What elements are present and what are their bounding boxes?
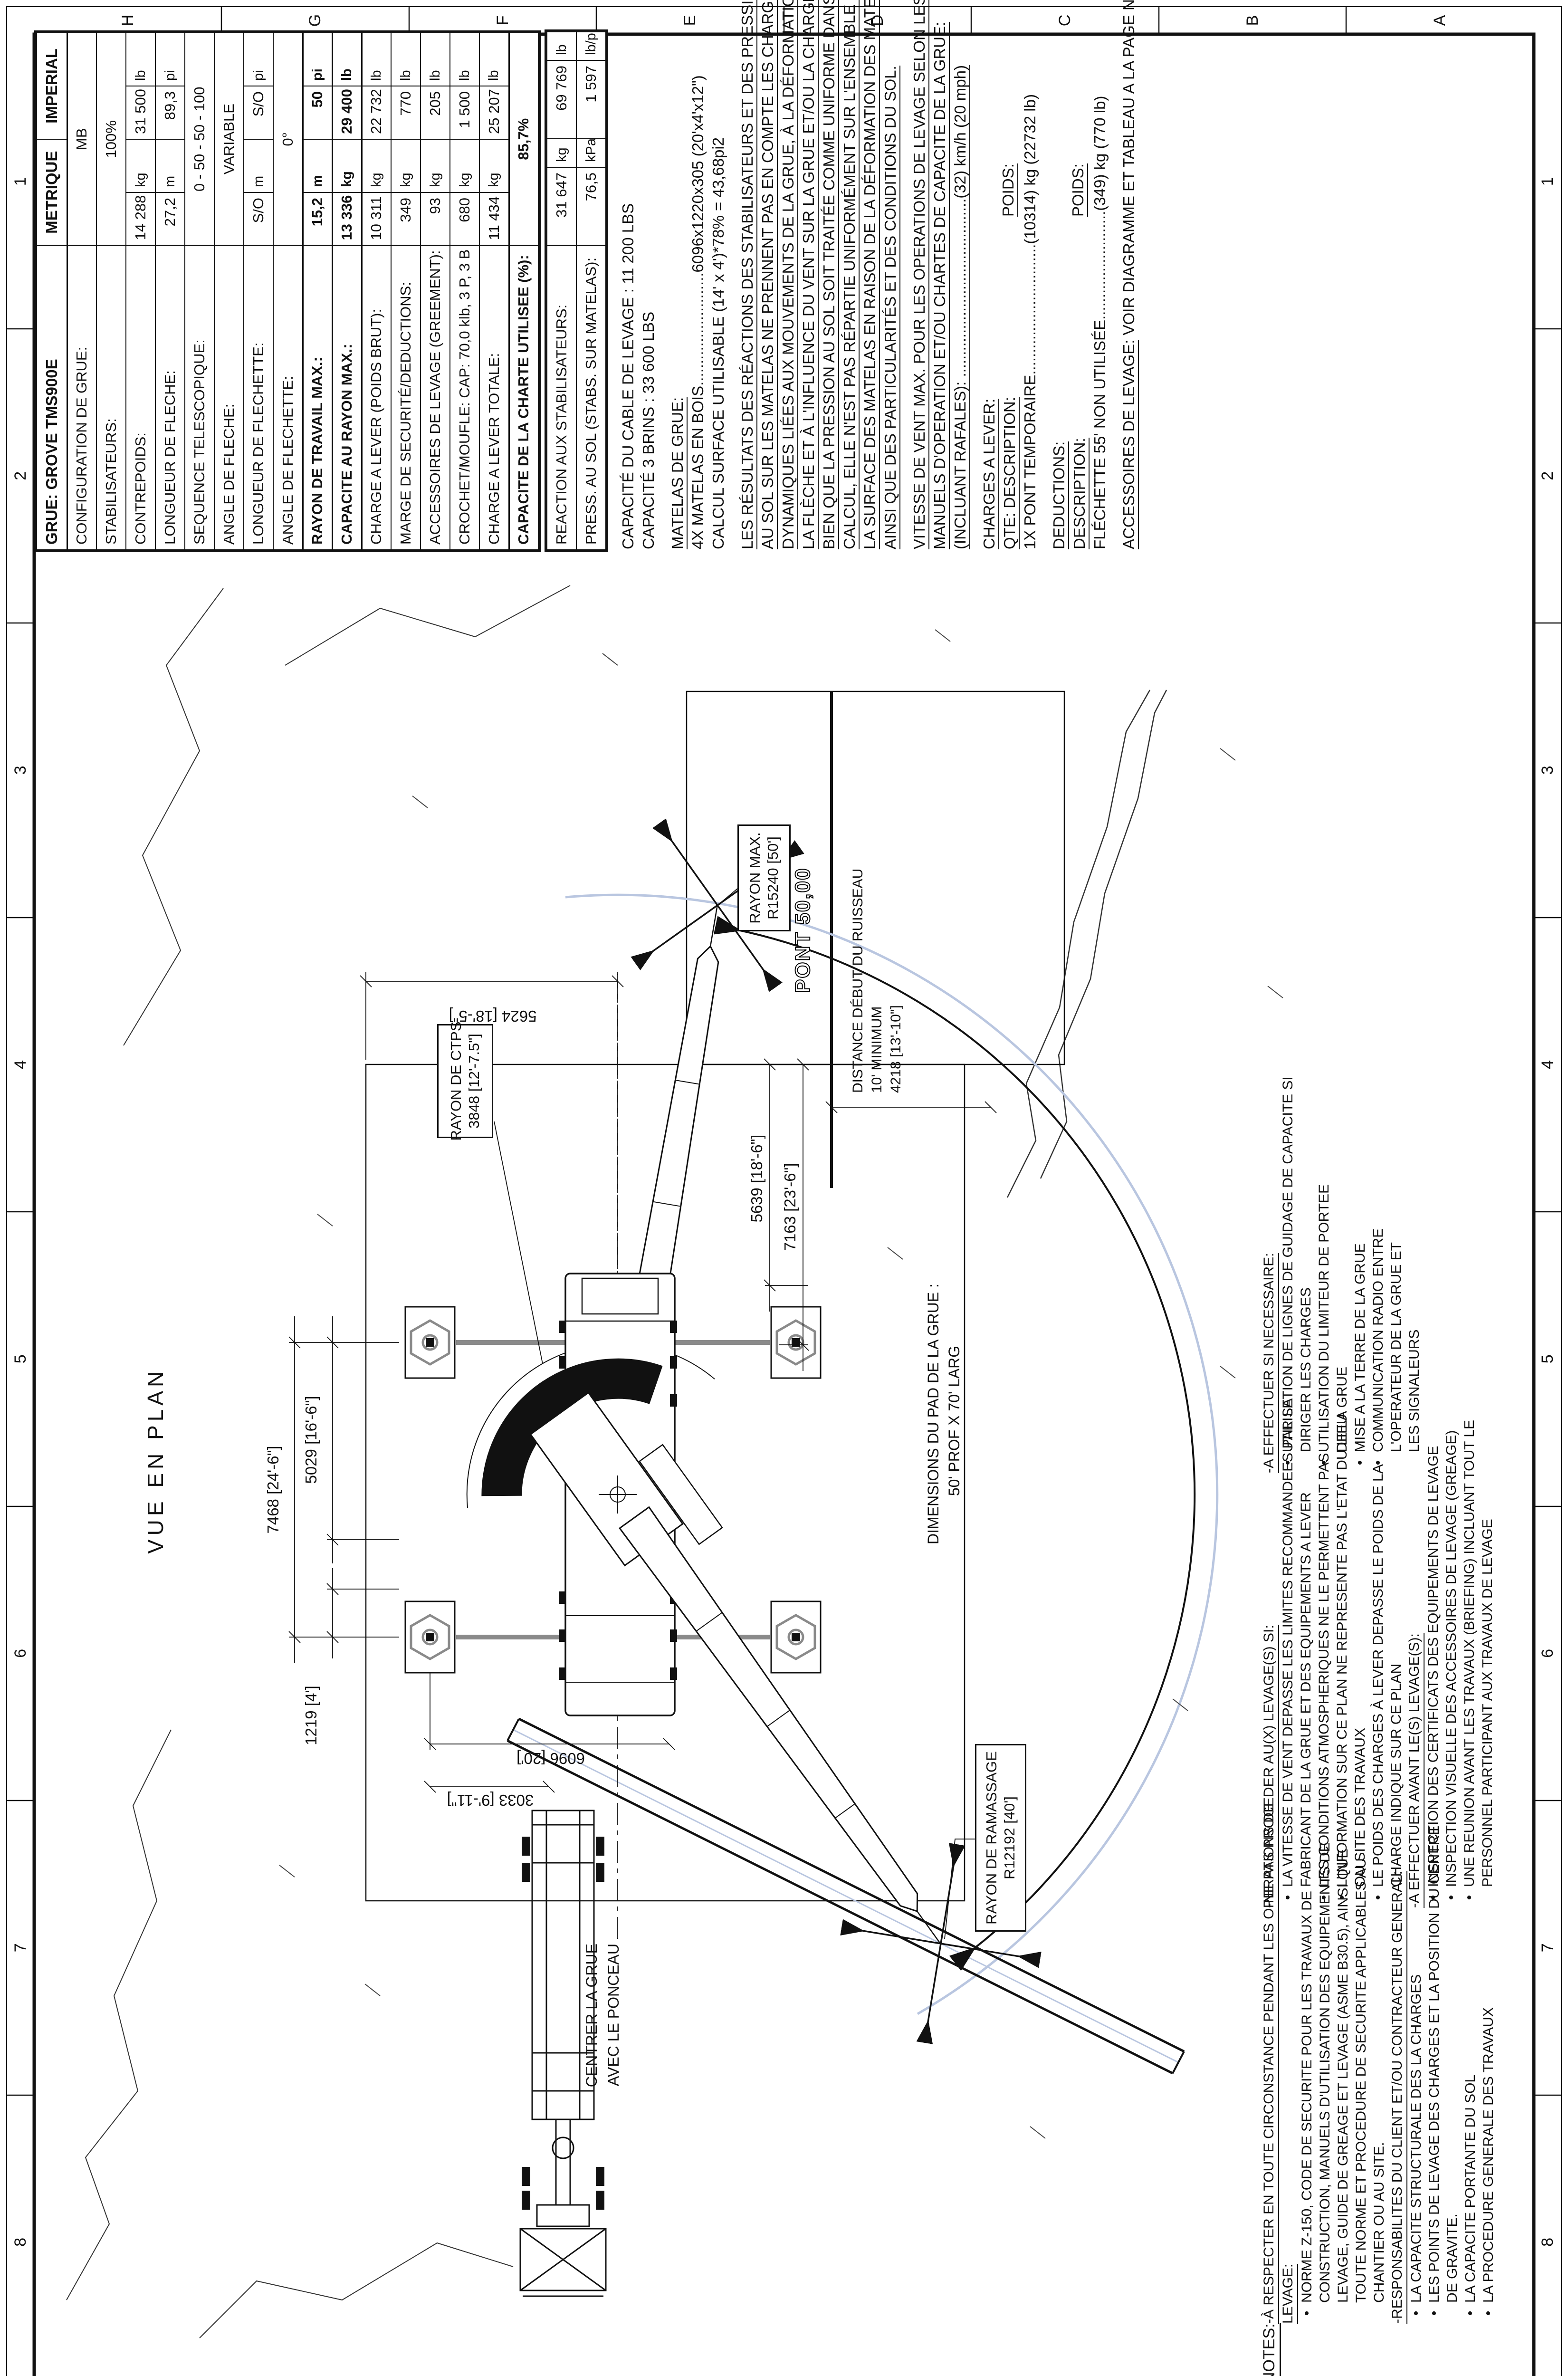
view-title: VUE EN PLAN [143, 1368, 168, 1554]
grid-label: 7 [7, 1801, 34, 2095]
grid-label: 6 [1534, 1506, 1561, 1801]
drawing-sheet: 87654321 87654321 HGFEDCBA HGFEDCBA GRUE… [0, 0, 1568, 2376]
pont-label: PONT 50,00 [791, 867, 815, 993]
grid-label: 8 [1534, 2095, 1561, 2376]
note-line: •UNE REUNION AVANT LES TRAVAUX (BRIEFING… [1461, 1490, 1479, 1908]
paragraph-line: LES RÉSULTATS DES RÉACTIONS DES STABILIS… [738, 0, 757, 549]
note-line: DE LA GRUE [1333, 1093, 1351, 1473]
grid-label: 3 [7, 623, 34, 918]
table-row: CROCHET/MOUFLE: CAP: 70,0 klb, 3 P, 3 B … [450, 33, 479, 550]
note-line: CHANTIER OU AU SITE. [1370, 1925, 1388, 2324]
grid-label: B [1159, 7, 1347, 34]
table-row: RAYON DE TRAVAIL MAX.: 15,2m 50pi [303, 33, 332, 550]
note-line: DIRIGER LES CHARGES [1297, 1093, 1315, 1473]
deduction-item: FLÉCHETTE 55' NON UTILISÉE..............… [1090, 34, 1110, 549]
table-row: CONFIGURATION DE GRUE: MB [67, 33, 96, 550]
charges-heading: CHARGES A LEVER: [980, 399, 999, 549]
wind-line: (INCLUANT RAFALES): ....................… [951, 65, 970, 549]
table-row: PRESS. AU SOL (STABS. SUR MATELAS): 76,5… [576, 32, 606, 550]
note-line: •UTILISATION DE LIGNES DE GUIDAGE DE CAP… [1279, 1093, 1297, 1473]
note-line: -RESPONSABILITES DU CLIENT ET/OU CONTRAC… [1388, 1925, 1407, 2324]
table-row: ANGLE DE FLECHE: VARIABLE [214, 33, 244, 550]
note-line: LES SIGNALEURS [1405, 1093, 1424, 1473]
rayon-ctps-box: RAYON DE CTPS3848 [12'-7.5"] [437, 1024, 493, 1138]
grid-label: 5 [1534, 1212, 1561, 1506]
accessories-heading: ACCESSOIRES DE LEVAGE: [1120, 340, 1139, 549]
lift-data-table: GRUE: GROVE TMS900E METRIQUE IMPERIAL CO… [34, 30, 541, 552]
grid-numbers-bottom: 87654321 [1534, 34, 1561, 2376]
note-line: -A EFFECTUER AVANT LE(S) LEVAGE(S): [1405, 1490, 1425, 1908]
wind-line: MANUELS D'OPERATION ET/OU CHARTES DE CAP… [931, 22, 950, 549]
note-line: -NE PAS PROCEDER AU(X) LEVAGE(S) SI: [1260, 1490, 1279, 1908]
notes-heading: NOTES: [1260, 2323, 1281, 2376]
table-row: LONGUEUR DE FLECHE: 27,2m 89,3pi [155, 33, 185, 550]
swing-arc [738, 930, 1195, 1949]
centrer-grue-label: CENTRER LA GRUE AVEC LE PONCEAU [581, 1944, 624, 2134]
drawing-page: 87654321 87654321 HGFEDCBA HGFEDCBA GRUE… [0, 0, 1568, 2376]
parts-capacity: CAPACITÉ 3 BRINS : 33 600 LBS [638, 34, 659, 549]
pad-dimensions-label: DIMENSIONS DU PAD DE LA GRUE : 50' PROF … [923, 1297, 965, 1544]
capacity-notes: CAPACITÉ DU CABLE DE LEVAGE : 11 200 LBS… [618, 34, 1139, 549]
paragraph-line: DYNAMIQUES LIÉES AUX MOUVEMENTS DE LA GR… [779, 0, 798, 549]
note-line: •INSPECTION VISUELLE DES ACCESSOIRES DE … [1443, 1490, 1461, 1908]
note-line: LEVAGE, GUIDE DE GREAGE ET LEVAGE (ASME … [1334, 1925, 1352, 2324]
paragraph-line: CALCUL, ELLE N'EST PAS RÉPARTIE UNIFORMÉ… [841, 0, 860, 549]
note-line: PERSONNEL PARTICIPANT AUX TRAVAUX DE LEV… [1479, 1490, 1497, 1908]
grid-label: 4 [1534, 918, 1561, 1212]
note-line: •LES POINTS DE LEVAGE DES CHARGES ET LA … [1425, 1925, 1444, 2324]
note-line: •LA VITESSE DE VENT DEPASSE LES LIMITES … [1279, 1490, 1297, 1908]
grid-label: 7 [1534, 1801, 1561, 2095]
note-line: •LE POIDS DES CHARGES À LEVER DEPASSE LE… [1369, 1490, 1387, 1908]
note-line: CHARGE INDIQUE SUR CE PLAN [1387, 1490, 1405, 1908]
table-row: SEQUENCE TELESCOPIQUE: 0 - 50 - 50 - 100 [185, 33, 214, 550]
grid-label: 4 [7, 918, 34, 1212]
poids-label: POIDS: [1069, 163, 1088, 217]
accessories-note: VOIR DIAGRAMME ET TABLEAU A LA PAGE No. … [1120, 0, 1138, 340]
grid-label: 1 [7, 34, 34, 329]
note-line: TOUTE NORME ET PROCEDURE DE SECURITE APP… [1352, 1925, 1370, 2324]
note-line: •INSPECTION DES CERTIFICATS DES EQUIPEME… [1425, 1490, 1443, 1908]
paragraph-line: LA SURFACE DES MATELAS EN RAISON DE LA D… [861, 0, 880, 549]
dim-7163: 7163 [23'-6"] [781, 1079, 799, 1335]
table-row: REACTION AUX STABILISATEURS: 31 647kg 69… [547, 32, 576, 550]
qte-description-label: QTE: DESCRIPTION: [1001, 397, 1020, 549]
table-row: CAPACITE DE LA CHARTE UTILISEE (%): 85,7… [509, 33, 538, 550]
dim-5639: 5639 [18'-6"] [748, 1074, 766, 1283]
note-line: OU SITE DES TRAVAUX [1351, 1490, 1369, 1908]
dim-7468: 7468 [24'-6"] [264, 1407, 282, 1573]
wind-line: VITESSE DE VENT MAX. POUR LES OPERATIONS… [910, 0, 929, 549]
table-row: ANGLE DE FLECHETTE: 0° [273, 33, 303, 550]
note-line: •LA CAPACITE PORTANTE DU SOL [1462, 1925, 1480, 2324]
notes-column-ne-pas-proceder: -NE PAS PROCEDER AU(X) LEVAGE(S) SI:•LA … [1260, 1490, 1497, 1908]
note-line: •LA PROCEDURE GENERALE DES TRAVAUX [1480, 1925, 1498, 2324]
grid-numbers-top: 87654321 [7, 34, 34, 2376]
dim-5029: 5029 [16'-6"] [302, 1357, 320, 1523]
note-line: •COMMUNICATION RADIO ENTRE [1369, 1093, 1387, 1473]
poids-label: POIDS: [999, 163, 1018, 217]
paragraph-line: AU SOL SUR LES MATELAS NE PRENNENT PAS E… [759, 0, 778, 549]
dim-6096: 6096 [20'] [489, 1749, 612, 1767]
reactions-table: REACTION AUX STABILISATEURS: 31 647kg 69… [545, 29, 608, 552]
notes-column-respecter: -À RESPECTER EN TOUTE CIRCONSTANCE PENDA… [1260, 1925, 1498, 2324]
grid-label: 3 [1534, 623, 1561, 918]
note-line: •LA CAPACITE STRUCTURALE DES LA CHARGES [1407, 1925, 1425, 2324]
grid-label: 5 [7, 1212, 34, 1506]
table-row: MARGE DE SECURITÉ/DEDUCTIONS: 349kg 770l… [391, 33, 421, 550]
dim-1219: 1219 [4'] [302, 1668, 320, 1763]
table-row: STABILISATEURS: 100% [96, 33, 126, 550]
dim-3033: 3033 [9'-11"] [429, 1791, 552, 1809]
matelas-line: CALCUL SURFACE UTILISABLE (14' x 4')*78%… [708, 34, 728, 549]
note-line: •LES CONDITIONS ATMOSPHERIQUES NE LE PER… [1315, 1490, 1333, 1908]
note-line: LEVAGE: [1279, 1925, 1298, 2324]
grid-label: 1 [1534, 34, 1561, 329]
note-line: FABRICANT DE LA GRUE ET DES EQUIPEMENTS … [1297, 1490, 1315, 1908]
col-imperial: IMPERIAL [37, 33, 67, 139]
note-line: •UTILISATION DU LIMITEUR DE PORTEE [1315, 1093, 1333, 1473]
note-line: DE GRAVITE. [1444, 1925, 1462, 2324]
grid-label: 2 [7, 329, 34, 623]
matelas-line: 4X MATELAS EN BOIS......................… [688, 34, 708, 549]
paragraph-line: BIEN QUE LA PRESSION AU SOL SOIT TRAITÉE… [820, 0, 839, 549]
note-line: L'OPERATEUR DE LA GRUE ET [1387, 1093, 1405, 1473]
grid-label: A [1347, 7, 1534, 34]
rayon-max-box: RAYON MAX.R15240 [50'] [737, 824, 791, 931]
table-row: LONGUEUR DE FLECHETTE: S/Om S/Opi [244, 33, 273, 550]
grid-label: 2 [1534, 329, 1561, 623]
matelas-heading: MATELAS DE GRUE: [669, 397, 688, 549]
notes-column-si-necessaire: -A EFFECTUER SI NECESSAIRE:•UTILISATION … [1260, 1093, 1424, 1473]
note-line: •MISE A LA TERRE DE LA GRUE [1351, 1093, 1369, 1473]
table-header-row: GRUE: GROVE TMS900E METRIQUE IMPERIAL [37, 33, 67, 550]
grid-label: 8 [7, 2095, 34, 2376]
grid-label: 6 [7, 1506, 34, 1801]
table-row: CONTREPOIDS: 14 288kg 31 500lb [126, 33, 155, 550]
table-row: CAPACITE AU RAYON MAX.: 13 336kg 29 400l… [332, 33, 362, 550]
note-line: •NORME Z-150, CODE DE SECURITE POUR LES … [1298, 1925, 1316, 2324]
table-row: CHARGE A LEVER TOTALE: 11 434kg 25 207lb [479, 33, 509, 550]
note-line: -A EFFECTUER SI NECESSAIRE: [1260, 1093, 1279, 1473]
rayon-ramassage-box: RAYON DE RAMASSAGER12192 [40'] [975, 1744, 1026, 1932]
note-line: CONSTRUCTION, MANUELS D'UTILISATION DES … [1316, 1925, 1334, 2324]
disclaimer-paragraph: LES RÉSULTATS DES RÉACTIONS DES STABILIS… [737, 34, 900, 549]
table-row: CHARGE A LEVER (POIDS BRUT): 10 311kg 22… [362, 33, 391, 550]
table-row: ACCESSOIRES DE LEVAGE (GREEMENT): 93kg 2… [421, 33, 450, 550]
note-line: •L'INFORMATION SUR CE PLAN NE REPRESENTE… [1333, 1490, 1351, 1908]
deductions-heading: DEDUCTIONS: [1050, 441, 1069, 549]
charge-item: 1X PONT TEMPORAIRE......................… [1020, 34, 1040, 549]
cable-capacity: CAPACITÉ DU CABLE DE LEVAGE : 11 200 LBS [618, 34, 638, 549]
crane-model: GRUE: GROVE TMS900E [37, 246, 67, 550]
col-metric: METRIQUE [37, 139, 67, 246]
ruisseau-distance-label: DISTANCE DÉBUT DU RUISSEAU 10' MINIMUM 4… [849, 889, 906, 1093]
note-line: -À RESPECTER EN TOUTE CIRCONSTANCE PENDA… [1260, 1925, 1279, 2324]
description-label: DESCRIPTION: [1071, 438, 1090, 549]
paragraph-line: LA FLÈCHE ET À L'INFLUENCE DU VENT SUR L… [800, 0, 819, 549]
paragraph-line: AINSI QUE DES PARTICULARITÉS ET DES COND… [881, 66, 900, 549]
